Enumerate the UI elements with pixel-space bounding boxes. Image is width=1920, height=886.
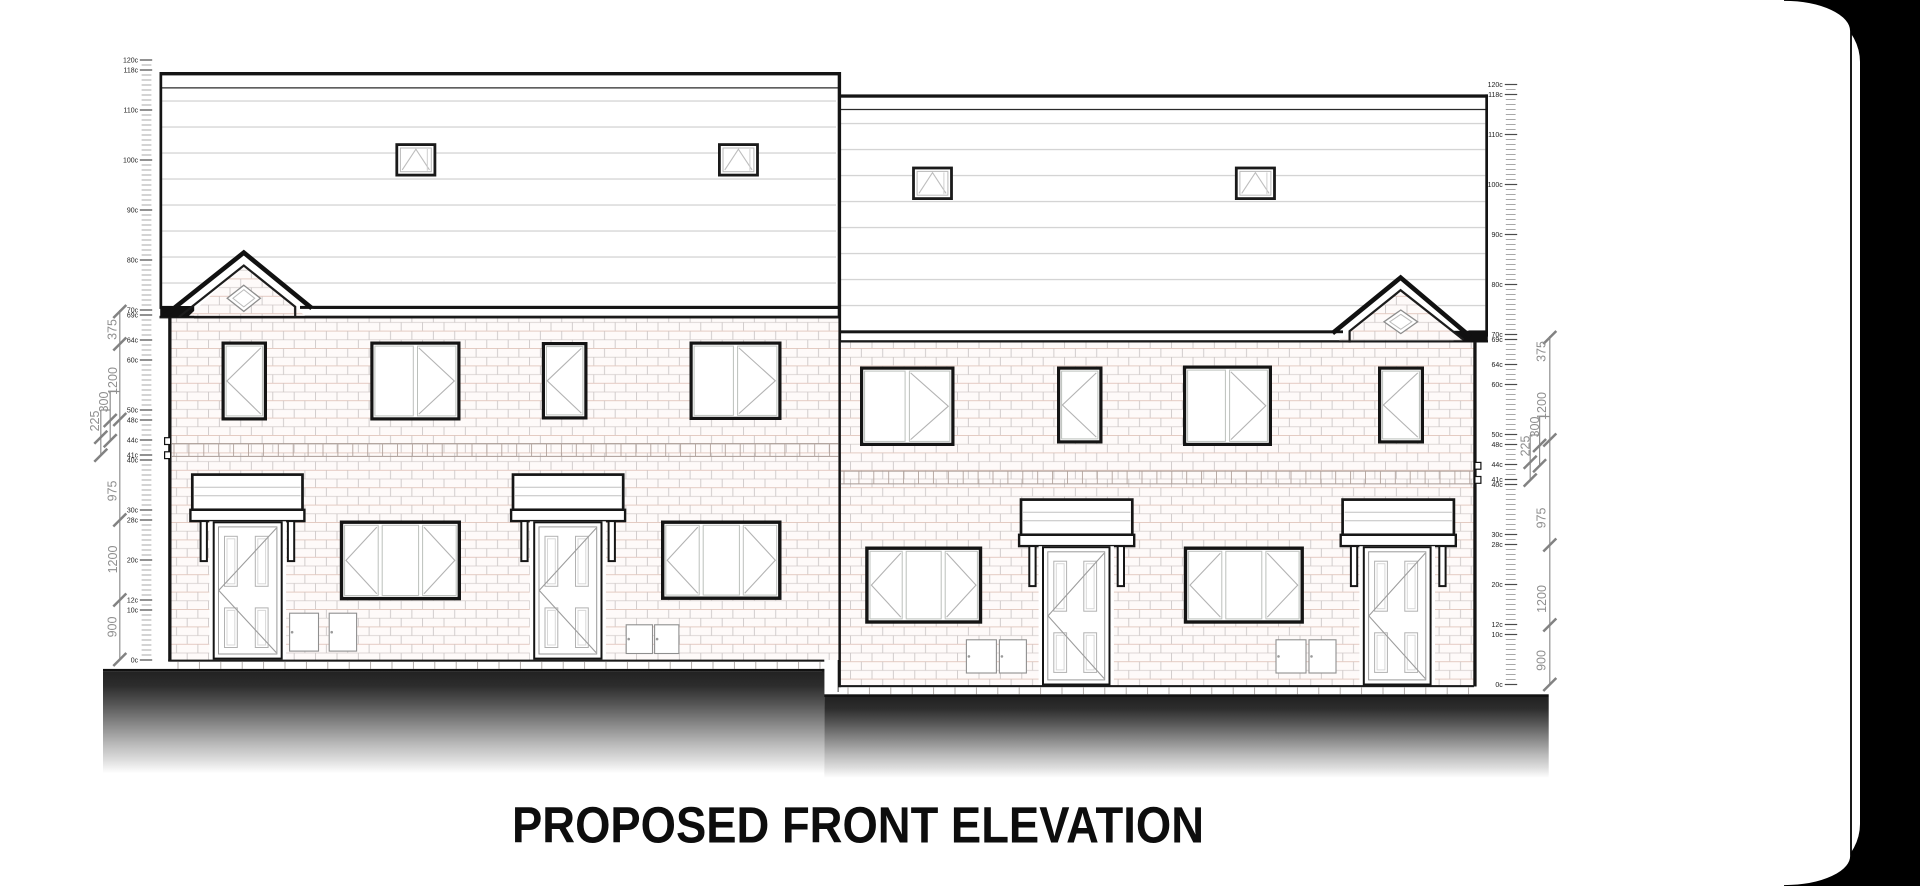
svg-text:12c: 12c [1492, 622, 1504, 629]
svg-text:225: 225 [88, 411, 102, 432]
svg-text:20c: 20c [1492, 582, 1504, 589]
svg-text:80c: 80c [1492, 282, 1504, 289]
svg-text:80c: 80c [127, 258, 139, 265]
svg-text:90c: 90c [127, 208, 139, 215]
svg-text:90c: 90c [1492, 232, 1504, 239]
svg-text:100c: 100c [1488, 182, 1504, 189]
svg-text:225: 225 [1518, 436, 1532, 457]
svg-text:900: 900 [1535, 650, 1549, 671]
svg-text:20c: 20c [127, 558, 139, 565]
svg-text:120c: 120c [1488, 82, 1504, 89]
svg-text:118c: 118c [1488, 92, 1503, 99]
svg-text:60c: 60c [1492, 382, 1504, 389]
svg-text:64c: 64c [1492, 362, 1504, 369]
svg-text:28c: 28c [127, 518, 139, 525]
svg-text:41c: 41c [127, 453, 139, 460]
svg-text:110c: 110c [1488, 132, 1503, 139]
svg-text:375: 375 [105, 319, 119, 340]
svg-text:30c: 30c [1492, 532, 1504, 539]
svg-text:0c: 0c [1495, 682, 1503, 689]
svg-text:41c: 41c [1492, 477, 1504, 484]
svg-text:60c: 60c [127, 358, 139, 365]
svg-text:70c: 70c [127, 308, 139, 315]
svg-text:12c: 12c [127, 598, 139, 605]
svg-text:10c: 10c [127, 608, 139, 615]
svg-text:50c: 50c [127, 408, 139, 415]
svg-text:44c: 44c [1492, 462, 1504, 469]
svg-text:120c: 120c [123, 58, 139, 65]
svg-text:48c: 48c [1492, 442, 1504, 449]
svg-text:975: 975 [106, 481, 120, 502]
svg-text:900: 900 [106, 617, 120, 638]
svg-text:70c: 70c [1492, 332, 1504, 339]
svg-text:50c: 50c [1492, 432, 1504, 439]
svg-text:44c: 44c [127, 438, 139, 445]
svg-text:0c: 0c [131, 658, 139, 665]
svg-text:64c: 64c [127, 338, 139, 345]
svg-text:118c: 118c [124, 68, 139, 75]
svg-text:100c: 100c [123, 158, 139, 165]
svg-text:1200: 1200 [106, 546, 120, 574]
svg-text:10c: 10c [1492, 632, 1504, 639]
svg-text:375: 375 [1534, 341, 1548, 362]
svg-text:300: 300 [97, 392, 111, 413]
svg-text:28c: 28c [1492, 542, 1504, 549]
svg-text:1200: 1200 [106, 367, 120, 395]
svg-text:1200: 1200 [1535, 585, 1549, 613]
svg-text:300: 300 [1528, 417, 1542, 438]
svg-text:48c: 48c [127, 418, 139, 425]
svg-text:975: 975 [1535, 508, 1549, 529]
svg-text:30c: 30c [127, 508, 139, 515]
svg-text:PROPOSED FRONT ELEVATION: PROPOSED FRONT ELEVATION [512, 797, 1204, 854]
svg-text:1200: 1200 [1535, 392, 1549, 420]
svg-text:110c: 110c [124, 108, 139, 115]
